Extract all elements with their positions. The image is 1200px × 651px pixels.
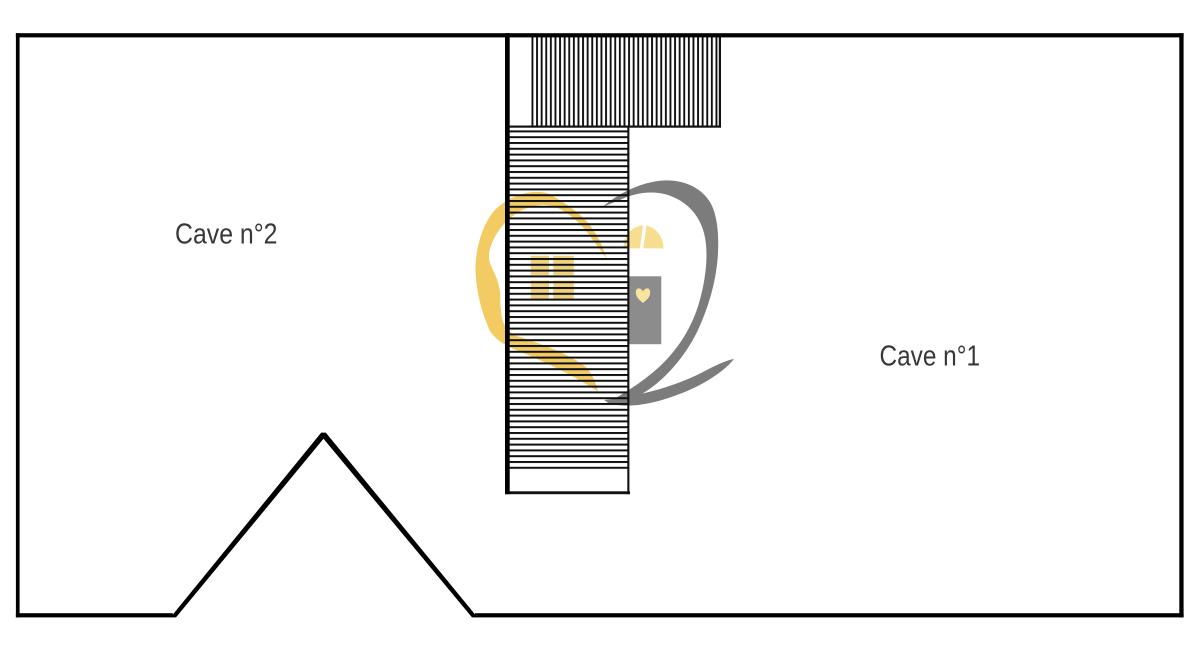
svg-text:Cave n°1: Cave n°1	[880, 340, 981, 372]
svg-text:Cave n°2: Cave n°2	[175, 218, 278, 250]
